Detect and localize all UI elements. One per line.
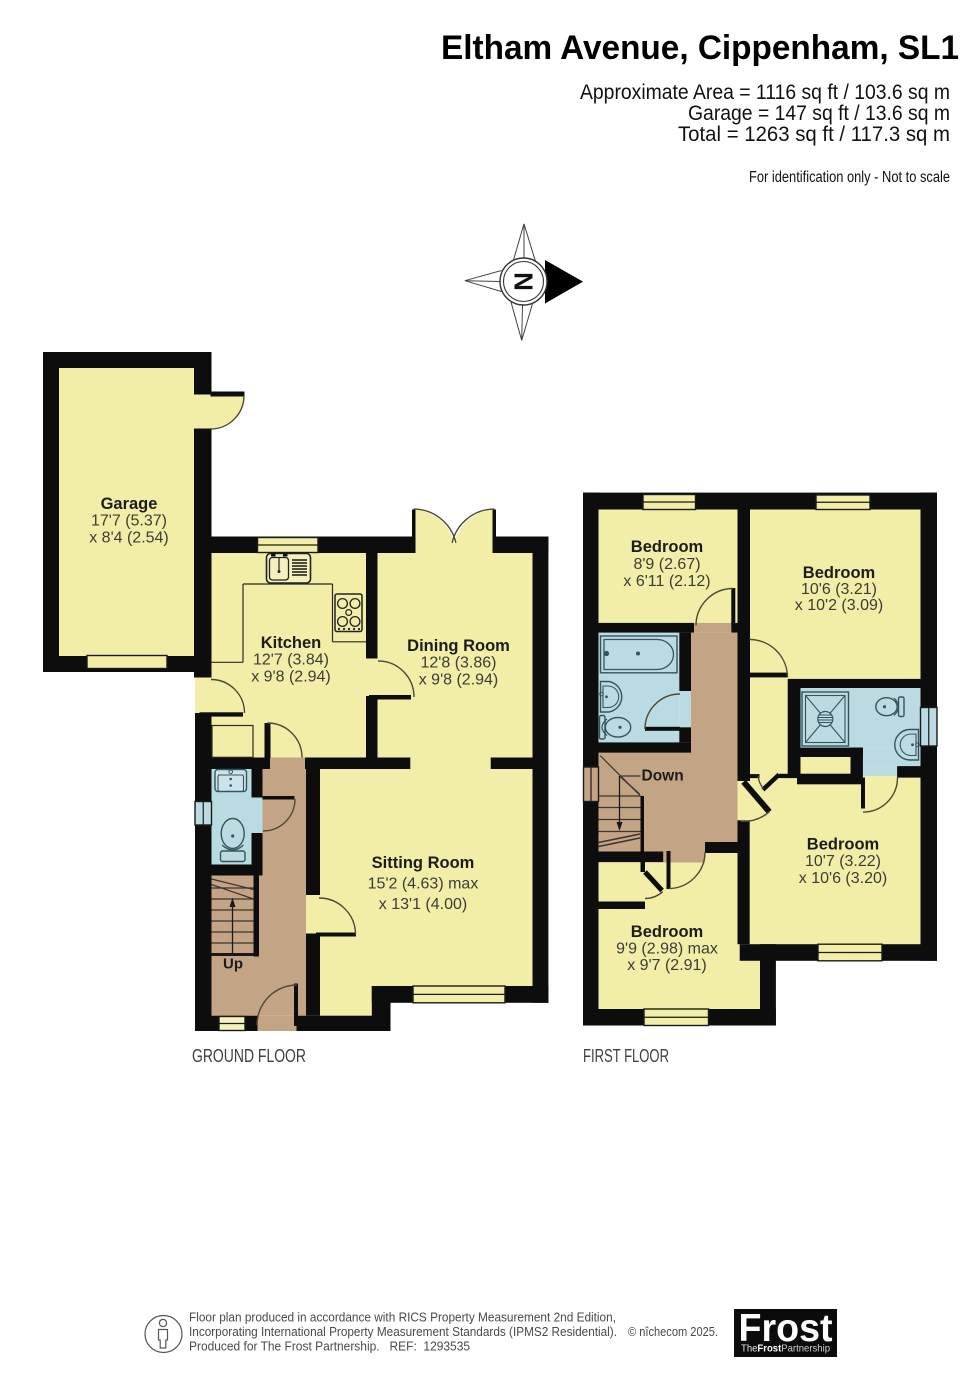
- svg-text:x 9'8 (2.94): x 9'8 (2.94): [419, 672, 499, 689]
- svg-text:12'7 (3.84): 12'7 (3.84): [253, 652, 329, 669]
- svg-text:x 6'11 (2.12): x 6'11 (2.12): [623, 573, 710, 590]
- svg-text:Bedroom: Bedroom: [631, 538, 703, 556]
- svg-text:12'8 (3.86): 12'8 (3.86): [421, 655, 497, 672]
- svg-text:Garage: Garage: [101, 495, 158, 513]
- svg-text:Incorporating International Pr: Incorporating International Property Mea…: [189, 1324, 617, 1339]
- svg-text:Floor plan produced in accorda: Floor plan produced in accordance with R…: [189, 1310, 616, 1325]
- svg-text:Approximate Area = 1116 sq ft: Approximate Area = 1116 sq ft / 103.6 sq…: [580, 81, 950, 104]
- svg-text:17'7 (5.37): 17'7 (5.37): [91, 513, 167, 530]
- svg-text:For identification only - Not: For identification only - Not to scale: [749, 169, 950, 186]
- svg-text:Bedroom: Bedroom: [807, 836, 879, 854]
- svg-text:15'2 (4.63) max: 15'2 (4.63) max: [368, 876, 479, 893]
- svg-text:N: N: [509, 272, 539, 291]
- svg-text:x 10'2 (3.09): x 10'2 (3.09): [795, 597, 883, 614]
- svg-text:FIRST FLOOR: FIRST FLOOR: [583, 1045, 669, 1066]
- svg-text:TheFrostPartnership: TheFrostPartnership: [741, 1343, 830, 1355]
- svg-text:8'9 (2.67): 8'9 (2.67): [633, 556, 700, 573]
- svg-text:Garage = 147 sq ft / 13.6 sq m: Garage = 147 sq ft / 13.6 sq m: [688, 102, 950, 125]
- svg-text:x 9'7 (2.91): x 9'7 (2.91): [627, 957, 707, 974]
- svg-text:Sitting Room: Sitting Room: [372, 854, 475, 872]
- svg-text:Produced for The Frost Partner: Produced for The Frost Partnership. REF:…: [189, 1339, 470, 1354]
- svg-text:10'6 (3.21): 10'6 (3.21): [801, 581, 877, 598]
- svg-text:9'9 (2.98) max: 9'9 (2.98) max: [616, 941, 718, 958]
- svg-text:x 9'8 (2.94): x 9'8 (2.94): [251, 669, 331, 686]
- svg-text:Kitchen: Kitchen: [261, 634, 322, 652]
- svg-text:Dining Room: Dining Room: [407, 637, 510, 655]
- svg-text:Bedroom: Bedroom: [803, 564, 875, 582]
- svg-text:x 8'4 (2.54): x 8'4 (2.54): [89, 530, 169, 547]
- svg-text:© nîchecom 2025.: © nîchecom 2025.: [628, 1324, 718, 1339]
- svg-text:Up: Up: [223, 956, 243, 973]
- svg-text:Down: Down: [642, 768, 684, 785]
- svg-text:Total = 1263 sq ft / 117.3 sq: Total = 1263 sq ft / 117.3 sq m: [678, 123, 950, 146]
- svg-text:x 13'1 (4.00): x 13'1 (4.00): [379, 896, 467, 913]
- svg-text:x 10'6 (3.20): x 10'6 (3.20): [799, 870, 887, 887]
- svg-text:10'7 (3.22): 10'7 (3.22): [805, 853, 881, 870]
- svg-text:GROUND FLOOR: GROUND FLOOR: [192, 1045, 306, 1066]
- svg-text:Eltham Avenue, Cippenham, SL1: Eltham Avenue, Cippenham, SL1: [441, 29, 959, 67]
- svg-text:Bedroom: Bedroom: [631, 923, 703, 941]
